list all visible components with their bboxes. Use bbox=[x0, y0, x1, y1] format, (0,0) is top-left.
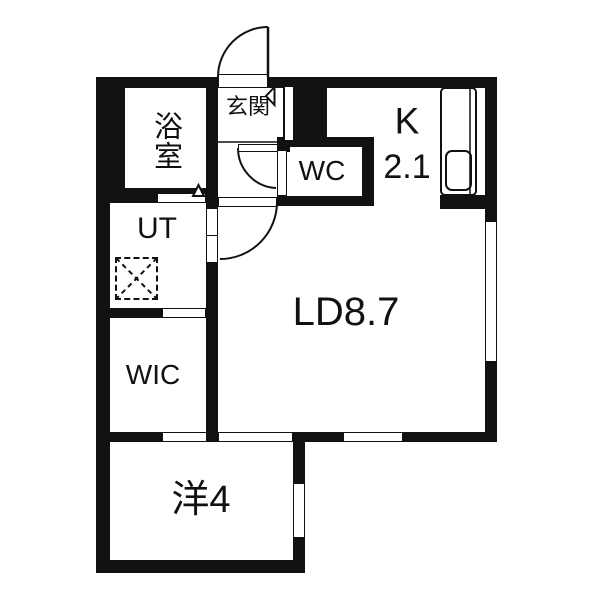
ld-door-leaf bbox=[218, 197, 277, 207]
ut-wic-opening bbox=[162, 308, 206, 318]
entrance-door-swing-arc bbox=[218, 27, 268, 77]
room-label-entrance: 玄関 bbox=[226, 96, 270, 118]
wall-bottom-wic bbox=[96, 432, 162, 442]
wall-wc-bottom bbox=[277, 196, 374, 206]
wall-bottom-ld-right bbox=[403, 432, 497, 442]
wc-door-leaf bbox=[238, 144, 278, 152]
bath-door-opening bbox=[157, 193, 206, 203]
entrance-door-leaf bbox=[218, 74, 268, 88]
wall-western-bottom bbox=[96, 560, 305, 573]
ld-door-swing-arc bbox=[220, 202, 277, 259]
ut-door-panel-lower bbox=[206, 235, 218, 263]
room-label-living-dining: LD8.7 bbox=[293, 292, 400, 332]
wall-bottom-ld-left bbox=[293, 432, 343, 442]
ut-door-panel-upper bbox=[206, 208, 218, 236]
shoe-cabinet bbox=[283, 85, 295, 142]
room-label-western-room: 洋4 bbox=[171, 481, 230, 519]
wall-top-left bbox=[96, 77, 218, 88]
wall-ut-wic bbox=[110, 308, 162, 318]
wc-door-swing-arc bbox=[238, 148, 276, 188]
wall-central-lower bbox=[206, 263, 218, 442]
wc-door-frame bbox=[277, 150, 287, 196]
wall-central-upper bbox=[206, 88, 218, 208]
room-label-kitchen: K bbox=[395, 103, 420, 140]
wall-western-right-upper bbox=[293, 442, 305, 483]
wall-under-counter bbox=[440, 195, 485, 209]
room-label-closet: WIC bbox=[126, 361, 180, 389]
ld-western-opening bbox=[218, 432, 293, 442]
room-label-wc: WC bbox=[299, 157, 346, 185]
wall-left-outer bbox=[96, 77, 110, 573]
floor-plan: 浴室 玄関 WC K 2.1 LD8.7 UT WIC 洋4 bbox=[0, 0, 600, 600]
ld-bottom-window bbox=[343, 432, 403, 442]
wall-block-kitchen bbox=[295, 88, 327, 137]
room-label-kitchen-size: 2.1 bbox=[383, 150, 430, 184]
room-label-utility: UT bbox=[137, 214, 177, 244]
room-label-bath: 浴室 bbox=[151, 111, 180, 171]
washer-space bbox=[115, 257, 158, 300]
wic-western-opening bbox=[162, 432, 207, 442]
kitchen-sink bbox=[445, 150, 472, 191]
ld-right-window bbox=[485, 221, 497, 362]
western-room-window bbox=[293, 483, 305, 538]
